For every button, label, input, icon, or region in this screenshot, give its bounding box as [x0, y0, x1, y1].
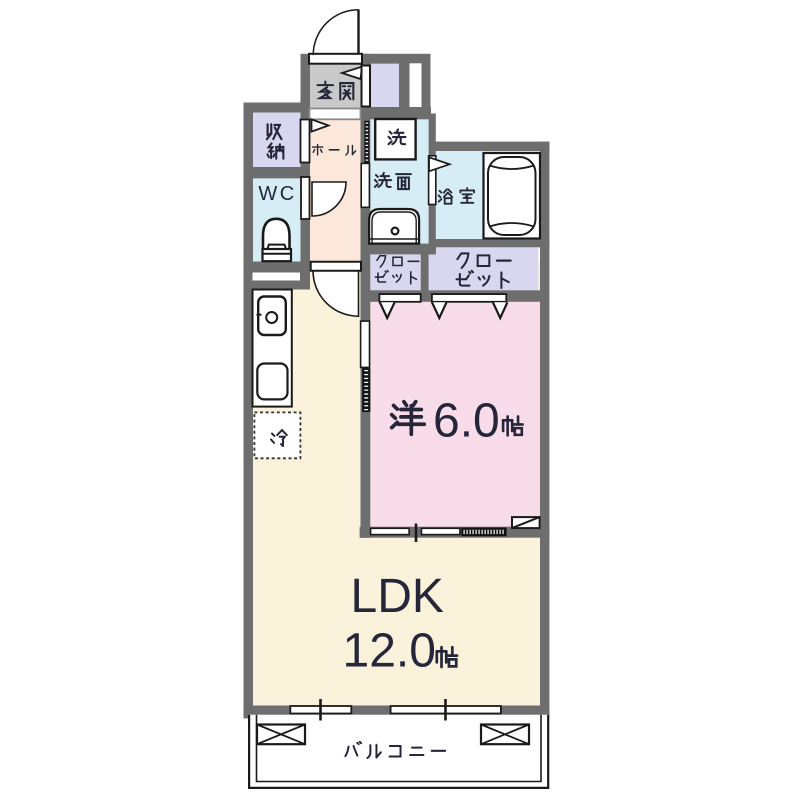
svg-text:12.0: 12.0: [343, 625, 436, 678]
svg-text:WC: WC: [258, 183, 296, 205]
svg-text:LDK: LDK: [351, 570, 444, 623]
svg-text:6.0: 6.0: [433, 395, 500, 448]
